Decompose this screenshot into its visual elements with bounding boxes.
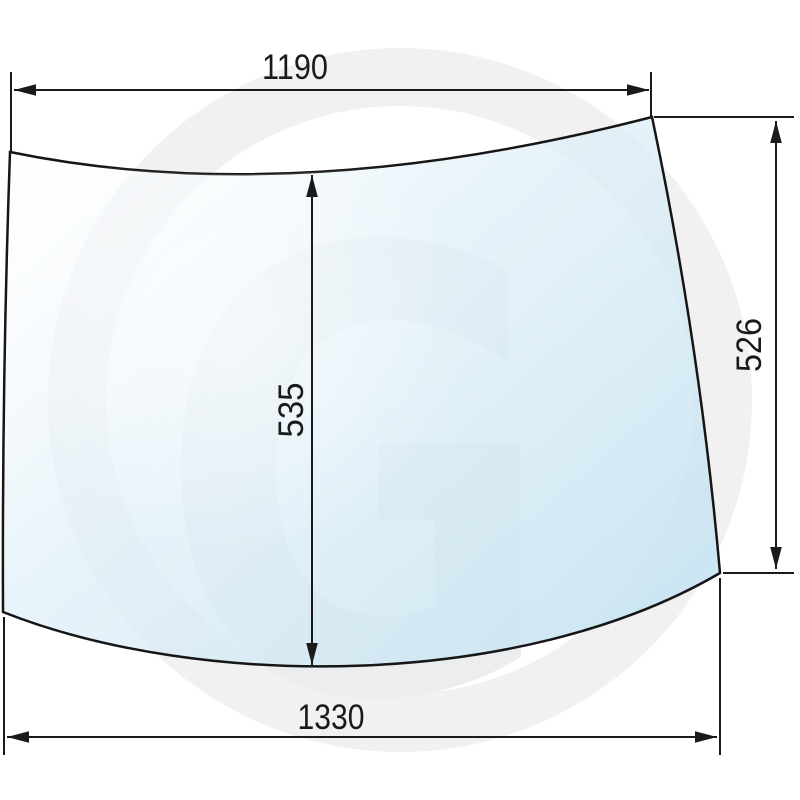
dimension-label-top-width: 1190 — [262, 48, 328, 87]
dimension-label-bottom-width: 1330 — [298, 698, 365, 737]
glass-sheen-highlight — [10, 115, 470, 545]
glass-pane-dimension-drawing: G 1190 535 526 — [0, 0, 800, 800]
technical-drawing-canvas: G 1190 535 526 — [0, 0, 800, 800]
dimension-label-right-height: 526 — [730, 318, 769, 372]
dimension-label-center-height: 535 — [272, 383, 311, 438]
glass-pane — [3, 115, 720, 666]
